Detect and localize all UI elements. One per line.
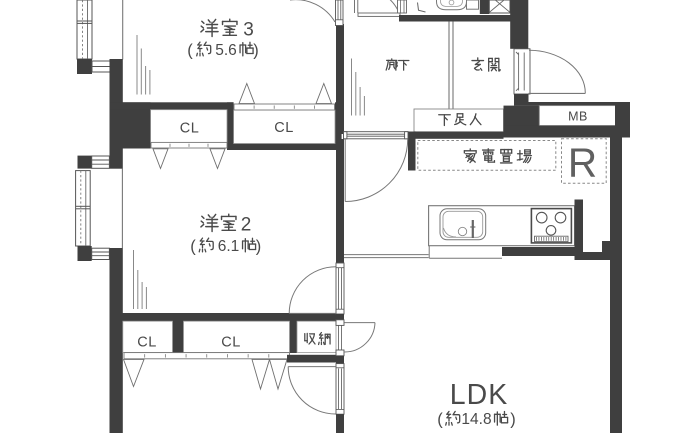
svg-text:CL: CL: [274, 120, 294, 136]
svg-text:(: (: [190, 238, 196, 256]
svg-text:): ): [256, 238, 262, 256]
svg-text:MB: MB: [568, 110, 588, 124]
svg-text:3: 3: [243, 20, 254, 41]
svg-text:(: (: [437, 411, 443, 429]
svg-text:LDK: LDK: [450, 379, 508, 411]
svg-text:CL: CL: [137, 335, 157, 351]
svg-text:2: 2: [241, 214, 252, 235]
svg-text:(: (: [187, 42, 193, 60]
svg-text:CL: CL: [221, 335, 241, 351]
svg-text:5.6: 5.6: [215, 42, 237, 59]
svg-text:14.8: 14.8: [461, 411, 491, 428]
svg-text:): ): [253, 42, 259, 60]
svg-text:): ): [510, 411, 516, 429]
svg-text:6.1: 6.1: [218, 238, 240, 255]
svg-text:CL: CL: [180, 120, 200, 136]
svg-text:R: R: [568, 140, 597, 186]
